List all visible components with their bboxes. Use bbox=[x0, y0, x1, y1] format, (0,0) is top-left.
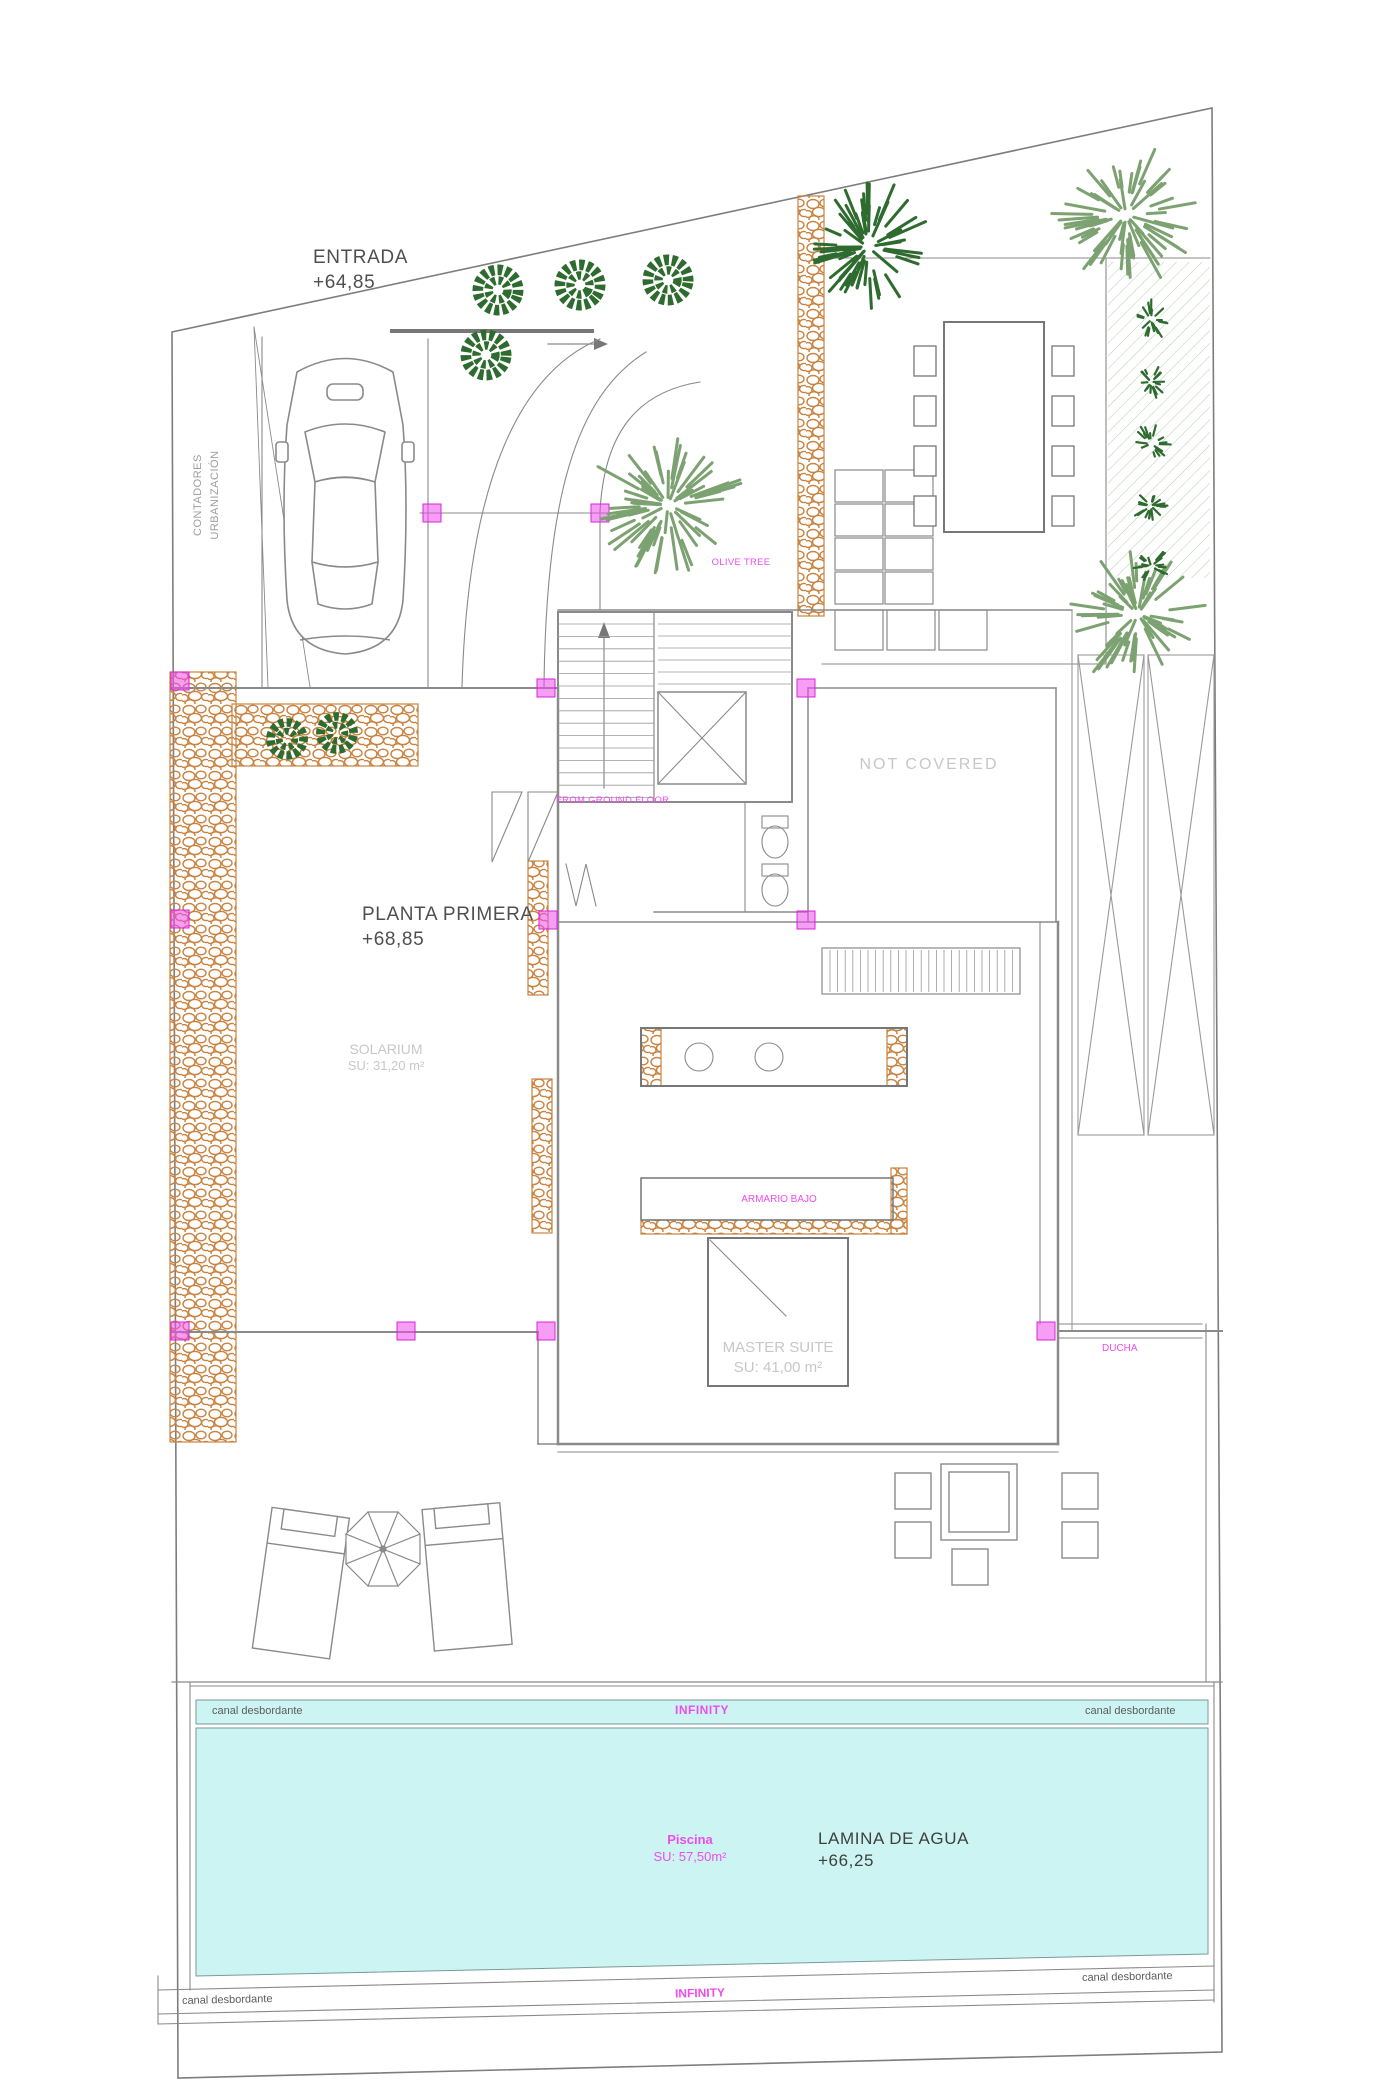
column-marker bbox=[537, 1322, 555, 1340]
column-marker bbox=[171, 910, 189, 928]
bush-icon bbox=[464, 333, 508, 377]
entrada-label: ENTRADA +64,85 bbox=[313, 246, 408, 295]
contadores-label: CONTADORES URBANIZACIÓN bbox=[190, 430, 224, 560]
column-marker bbox=[797, 679, 815, 697]
master-suite-label: MASTER SUITE SU: 41,00 m² bbox=[723, 1338, 834, 1377]
ground-floor-note: FROM GROUND FLOOR bbox=[556, 795, 669, 807]
column-marker bbox=[1037, 1322, 1055, 1340]
entrada-level: +64,85 bbox=[313, 271, 408, 296]
column-marker bbox=[797, 911, 815, 929]
olive-tree-icon bbox=[814, 183, 925, 308]
piscina-name: Piscina bbox=[654, 1832, 727, 1849]
olive-tree-icon bbox=[598, 439, 741, 573]
column-marker bbox=[423, 504, 441, 522]
armario-label: ARMARIO BAJO bbox=[741, 1193, 817, 1206]
lamina-label: LAMINA DE AGUA +66,25 bbox=[818, 1828, 969, 1872]
slope-hatch bbox=[1108, 262, 1210, 578]
plan-drawing bbox=[0, 0, 1400, 2092]
sun-lounger bbox=[422, 1503, 512, 1651]
pebble-walls bbox=[170, 196, 907, 1442]
infinity-top-label: INFINITY bbox=[675, 1703, 729, 1719]
ducha-label: DUCHA bbox=[1102, 1342, 1138, 1355]
column-marker bbox=[397, 1322, 415, 1340]
pergola-panels bbox=[1072, 610, 1214, 1331]
column-marker bbox=[539, 911, 557, 929]
parasol bbox=[346, 1512, 420, 1586]
solarium-area: SU: 31,20 m² bbox=[348, 1058, 425, 1075]
canal-bottom-right-label: canal desbordante bbox=[1082, 1969, 1173, 1985]
master-suite-area: SU: 41,00 m² bbox=[723, 1358, 834, 1378]
bush-icon bbox=[645, 257, 691, 303]
contadores-line2: URBANIZACIÓN bbox=[207, 430, 224, 560]
solarium-label: SOLARIUM SU: 31,20 m² bbox=[348, 1040, 425, 1075]
staircase bbox=[558, 612, 792, 802]
piscina-area: SU: 57,50m² bbox=[654, 1849, 727, 1866]
entrada-name: ENTRADA bbox=[313, 246, 408, 271]
contadores-line1: CONTADORES bbox=[190, 430, 207, 560]
canal-bottom-left-label: canal desbordante bbox=[182, 1992, 273, 2008]
canal-top-right-label: canal desbordante bbox=[1085, 1704, 1176, 1718]
outdoor-seating bbox=[895, 1464, 1098, 1585]
planta-level: +68,85 bbox=[362, 928, 534, 953]
solarium-name: SOLARIUM bbox=[348, 1040, 425, 1058]
piscina-label: Piscina SU: 57,50m² bbox=[654, 1832, 727, 1866]
lamina-level: +66,25 bbox=[818, 1850, 969, 1872]
column-marker bbox=[171, 672, 189, 690]
bush-icon bbox=[473, 265, 524, 316]
sun-lounger bbox=[252, 1507, 349, 1658]
car-icon bbox=[276, 359, 414, 655]
column-marker bbox=[537, 679, 555, 697]
planta-name: PLANTA PRIMERA bbox=[362, 903, 534, 928]
planta-label: PLANTA PRIMERA +68,85 bbox=[362, 903, 534, 952]
infinity-bottom-label: INFINITY bbox=[675, 1985, 725, 2002]
counter bbox=[641, 1028, 907, 1086]
olive-tree-label: OLIVE TREE bbox=[712, 557, 771, 569]
canal-top-left-label: canal desbordante bbox=[212, 1704, 303, 1718]
dining-table bbox=[914, 322, 1074, 532]
bush-icon bbox=[552, 257, 609, 314]
floor-plan: ENTRADA +64,85 CONTADORES URBANIZACIÓN O… bbox=[0, 0, 1400, 2092]
master-suite-name: MASTER SUITE bbox=[723, 1338, 834, 1358]
column-marker bbox=[171, 1322, 189, 1340]
not-covered-label: NOT COVERED bbox=[859, 755, 998, 776]
bathroom bbox=[654, 802, 808, 912]
lamina-name: LAMINA DE AGUA bbox=[818, 1828, 969, 1850]
